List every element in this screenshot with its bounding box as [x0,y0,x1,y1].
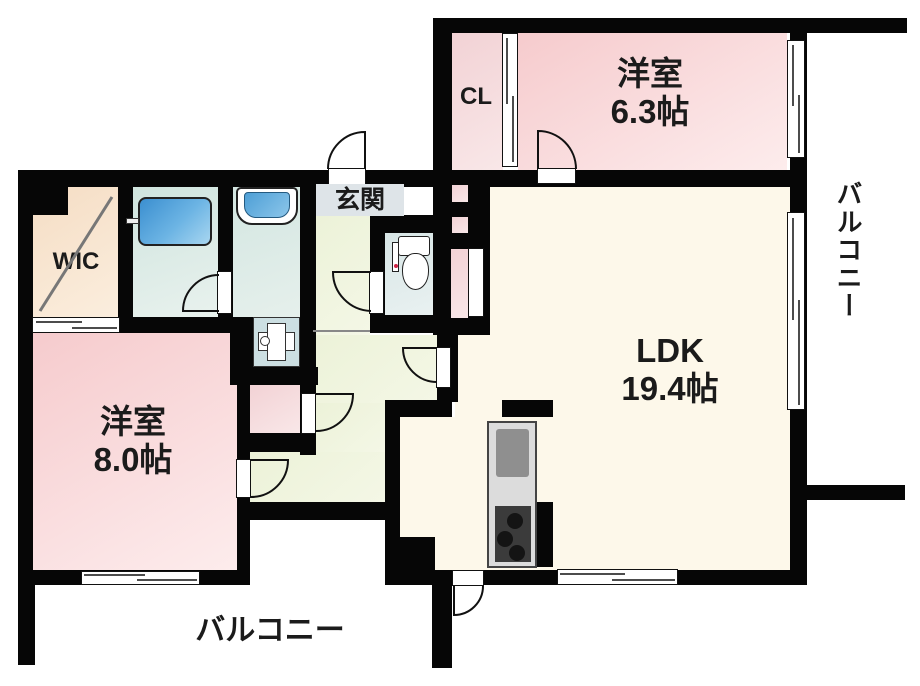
wall-segment [385,400,400,585]
entrance-foyer [313,215,370,335]
storage-niche [452,185,468,202]
bedroom63-door-panel [537,168,576,184]
entrance-door-arc [328,132,365,169]
hallway [312,335,437,403]
wall-segment [400,537,435,572]
toilet-control-light [394,264,398,268]
label-ldk: LDK 19.4帖 [570,332,770,408]
wall-segment [432,585,452,668]
label-balcony-right: バルコニー [826,160,862,340]
wall-segment [535,502,553,567]
label-cl: CL [450,83,502,111]
wall-segment [385,400,452,417]
window-bedroom63 [787,40,805,158]
wall-segment [18,585,35,665]
room-size: 19.4帖 [570,370,770,408]
room-name: 洋室 [38,403,228,441]
bedroom80-door-panel [236,459,251,498]
hallway [312,403,385,453]
hallway [250,452,385,503]
wall-segment [452,318,468,335]
vanity-bowl [244,192,290,218]
entrance-door-panel [328,168,366,185]
wall-segment [452,233,468,249]
floorplan: 洋室 6.3帖 LDK 19.4帖 洋室 8.0帖 WIC CL 玄関 バルコニ… [0,0,920,686]
room-name: 洋室 [555,55,745,93]
washbasin-faucet [260,336,270,346]
hall-closet [250,385,300,433]
room-ldk [455,335,490,570]
bathtub-faucet [126,218,139,224]
label-bedroom-6-3: 洋室 6.3帖 [555,55,745,131]
bath-door-panel [217,271,232,314]
room-size: 6.3帖 [555,93,745,131]
wall-segment [33,185,68,215]
window-ldk-right [787,212,805,410]
service-door-panel [452,570,484,586]
label-entrance: 玄関 [316,184,404,216]
stove-burner [509,545,525,561]
label-balcony-bottom: バルコニー [140,614,400,649]
storage-niche [451,249,468,318]
label-wic: WIC [36,248,116,276]
kitchen-sink [496,429,529,477]
room-name: LDK [570,332,770,370]
wall-segment [18,170,33,585]
wall-segment [433,170,452,335]
wall-segment [452,202,468,217]
toilet-bowl [402,253,429,290]
room-size: 8.0帖 [38,441,228,479]
bathtub [138,197,212,246]
ldk-door-panel [436,347,451,388]
wall-segment [435,18,907,33]
sliding-door-cl [502,33,518,167]
wall-segment [250,502,385,520]
window-bedroom80 [81,571,200,585]
sliding-door-wic [32,317,120,333]
stove-burner [507,513,523,529]
closet-door-panel [301,393,316,434]
wall-segment [18,170,807,187]
service-door-arc [454,586,483,615]
stove-burner [497,531,513,547]
label-bedroom-8-0: 洋室 8.0帖 [38,403,228,479]
storage-niche [452,217,468,233]
balcony-divider [790,485,905,500]
wall-segment [118,185,133,318]
window-ldk-bottom [557,569,678,585]
wall-segment [250,433,315,452]
wall-segment [502,400,553,417]
storage-door-panel [468,248,484,317]
toilet-door-panel [369,271,384,314]
